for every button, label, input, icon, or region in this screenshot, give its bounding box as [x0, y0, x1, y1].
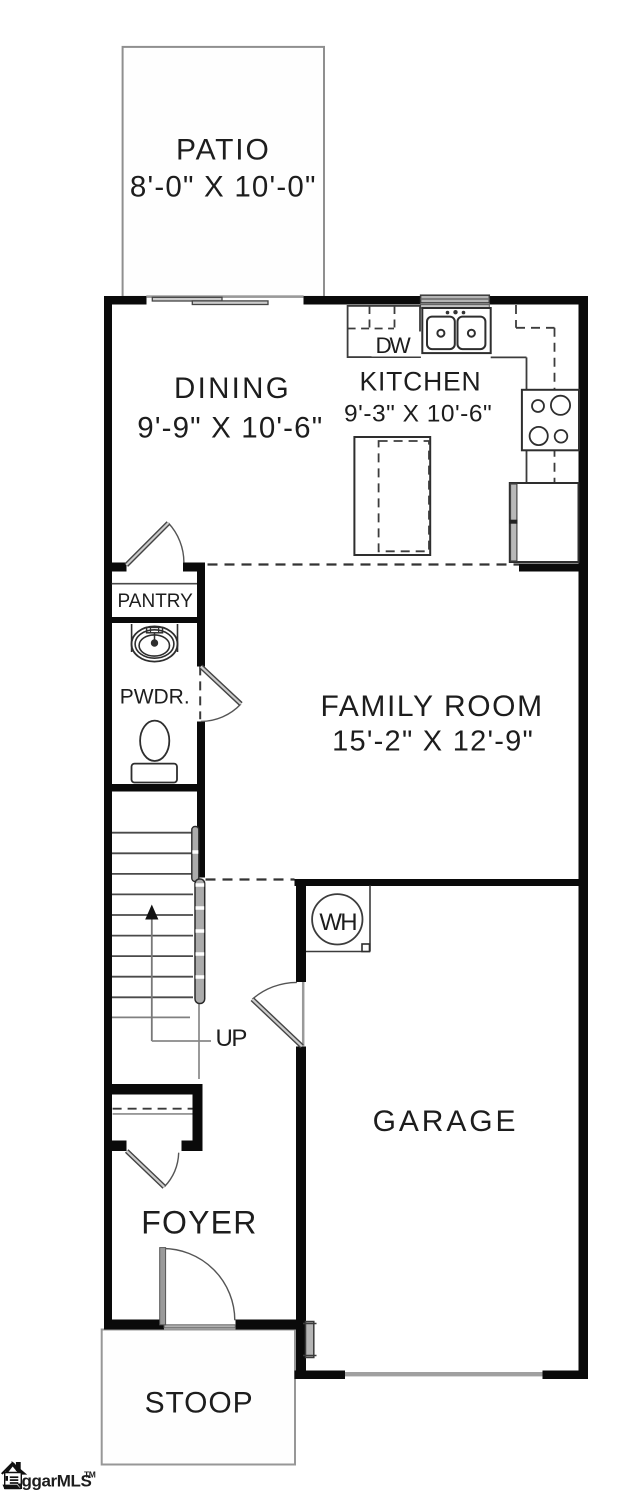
svg-text:FOYER: FOYER [141, 1205, 257, 1241]
svg-text:DINING: DINING [174, 372, 291, 405]
svg-text:STOOP: STOOP [145, 1387, 254, 1420]
svg-text:KITCHEN: KITCHEN [360, 367, 482, 397]
svg-text:DW: DW [376, 333, 412, 358]
svg-text:15'-2" X 12'-9": 15'-2" X 12'-9" [332, 726, 534, 758]
svg-text:TM: TM [84, 1470, 96, 1480]
svg-text:FAMILY ROOM: FAMILY ROOM [320, 690, 543, 723]
svg-text:8'-0" X 10'-0": 8'-0" X 10'-0" [130, 171, 317, 204]
svg-text:WH: WH [319, 909, 356, 936]
svg-text:PANTRY: PANTRY [118, 591, 194, 612]
svg-text:PATIO: PATIO [176, 134, 271, 167]
svg-text:9'-3" X 10'-6": 9'-3" X 10'-6" [344, 401, 492, 428]
svg-text:9'-9" X 10'-6": 9'-9" X 10'-6" [137, 412, 323, 445]
svg-text:GARAGE: GARAGE [373, 1105, 519, 1138]
svg-text:UP: UP [216, 1025, 247, 1052]
svg-text:ggarMLS: ggarMLS [22, 1472, 92, 1491]
svg-text:PWDR.: PWDR. [120, 685, 190, 708]
